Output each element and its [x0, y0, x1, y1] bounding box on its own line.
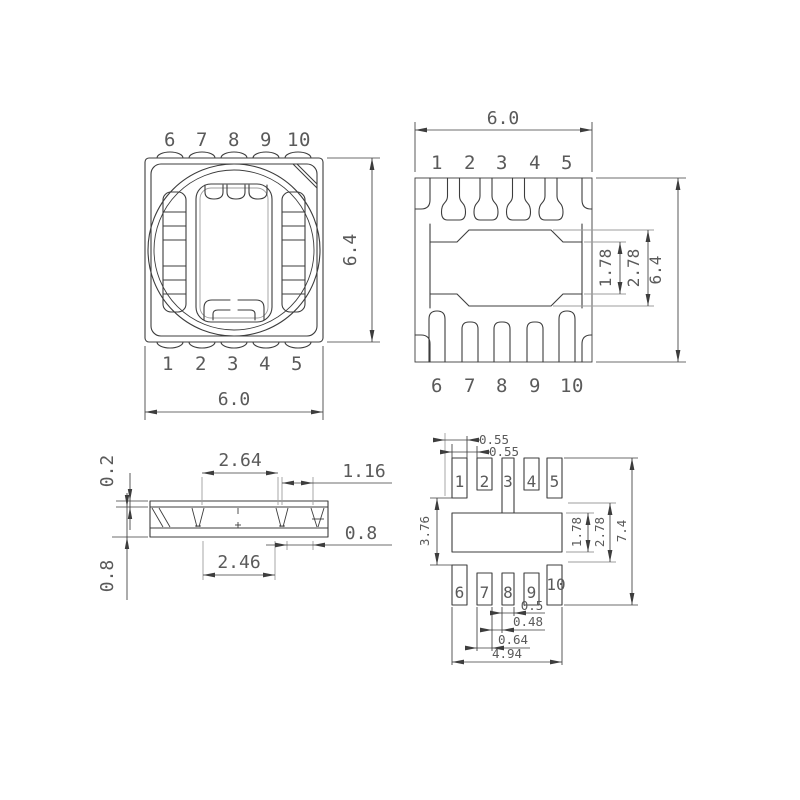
pad-label: 10: [546, 575, 565, 594]
dim-bottom-span: 2.46: [203, 541, 275, 580]
pad-label: 4: [527, 472, 537, 491]
pin-label: 9: [529, 375, 541, 397]
pin-labels-top: 1 2 3 4 5: [431, 152, 573, 174]
bottom-finger-pads: [415, 294, 592, 362]
center-pad: [452, 513, 562, 552]
dim-label: 3.76: [417, 516, 432, 546]
dim-center-height: 1.78: [566, 513, 594, 552]
pin-labels-bottom: 1 2 3 4 5: [162, 353, 303, 375]
pin-label: 8: [228, 129, 240, 151]
package-outline: [145, 158, 323, 342]
dim-label: 0.2: [97, 455, 118, 488]
right-electrode-bar: [282, 192, 305, 312]
pad-label: 8: [503, 583, 513, 602]
pin-label: 1: [431, 152, 443, 174]
dim-label-width: 6.0: [218, 389, 251, 410]
dim-label: 2.78: [624, 249, 643, 288]
pin-label: 3: [496, 152, 508, 174]
lens-inner-circle: [154, 170, 314, 330]
pad-label: 7: [480, 583, 490, 602]
dim-label: 1.16: [342, 461, 385, 482]
pin-label: 9: [260, 129, 272, 151]
die-bottom-contacts: [204, 300, 264, 320]
dim-center-height: 1.78: [584, 242, 626, 294]
thermal-pad: [430, 230, 582, 306]
pin-label: 4: [259, 353, 271, 375]
dim-row-gap: 3.76: [417, 498, 452, 565]
dim-label: 1.78: [569, 517, 584, 547]
dim-label: 0.64: [498, 632, 528, 647]
dim-label: 0.55: [489, 444, 519, 459]
dim-label: 2.46: [217, 552, 260, 573]
left-electrode-bar: [163, 192, 186, 312]
cavity-outline: [151, 164, 317, 336]
die-frame-inner: [200, 188, 268, 318]
dim-label-height: 6.4: [340, 234, 361, 267]
lens-outer-circle: [148, 164, 320, 336]
die-top-contacts: [205, 185, 267, 199]
top-pad-slots: [415, 178, 592, 242]
dim-label: 2.64: [218, 450, 261, 471]
dim-top-layer: 0.2: [97, 455, 148, 530]
dim-offset-a: 0.55: [433, 432, 509, 496]
view-side: 0.2 0.8 2.64 1.16: [97, 450, 392, 600]
pad-label: 2: [480, 472, 490, 491]
pin-label: 2: [195, 353, 207, 375]
dim-label: 4.94: [492, 646, 522, 661]
pad-label: 5: [550, 472, 560, 491]
pin-label: 8: [496, 375, 508, 397]
polarity-notch: [293, 164, 317, 188]
dim-label: 0.8: [345, 523, 378, 544]
package-outline: [415, 178, 592, 362]
pin-label: 5: [561, 152, 573, 174]
pin-label: 6: [164, 129, 176, 151]
dim-label: 2.78: [592, 517, 607, 547]
view-pad-layout: 1 2 3 4 5 6 7 8 9 10 0.55 0.55: [417, 432, 638, 665]
dim-label: 0.5: [521, 598, 544, 613]
pin-label: 6: [431, 375, 443, 397]
pin-label: 7: [196, 129, 208, 151]
view-package-bottom: 1 2 3 4 5 6 7 8 9 10 6.0 6.4: [415, 108, 686, 397]
dim-pad8-width: 0.5: [490, 598, 545, 615]
pad-label: 6: [455, 583, 465, 602]
pad-label: 3: [503, 472, 513, 491]
pin-label: 4: [529, 152, 541, 174]
lead-profiles: [152, 508, 324, 528]
pad-label: 1: [455, 472, 465, 491]
pad-numbers: 1 2 3 4 5 6 7 8 9 10: [455, 472, 566, 602]
pin-label: 10: [560, 375, 584, 397]
pin-label: 10: [287, 129, 311, 151]
pin-labels-top: 6 7 8 9 10: [164, 129, 311, 151]
pin-label: 2: [464, 152, 476, 174]
pin-labels-bottom: 6 7 8 9 10: [431, 375, 584, 397]
dim-label: 7.4: [614, 520, 629, 543]
dim-label-width: 6.0: [487, 108, 520, 129]
dim-top-span: 2.64: [202, 450, 278, 505]
dim-label: 1.78: [596, 249, 615, 288]
body-outline: [150, 501, 328, 537]
pin-label: 5: [291, 353, 303, 375]
dim-lead-offset: 1.16: [282, 461, 392, 505]
dim-body-height: 0.8: [97, 493, 148, 600]
pin-label: 3: [227, 353, 239, 375]
pin-label: 1: [162, 353, 174, 375]
dim-label: 0.48: [513, 614, 543, 629]
dim-label: 0.8: [97, 560, 118, 593]
dim-height: 6.4: [327, 158, 380, 342]
view-package-top: 6 7 8 9 10 1 2 3 4 5 6.4 6.0: [145, 129, 380, 420]
drawing-canvas: 6 7 8 9 10 1 2 3 4 5 6.4 6.0: [0, 0, 800, 800]
dim-pad-gap: 0.48: [480, 614, 545, 632]
dim-label-height: 6.4: [646, 256, 665, 285]
pin-label: 7: [464, 375, 476, 397]
drawing-sheet: 6 7 8 9 10 1 2 3 4 5 6.4 6.0: [0, 0, 800, 800]
castellation-bumps: [157, 152, 311, 348]
